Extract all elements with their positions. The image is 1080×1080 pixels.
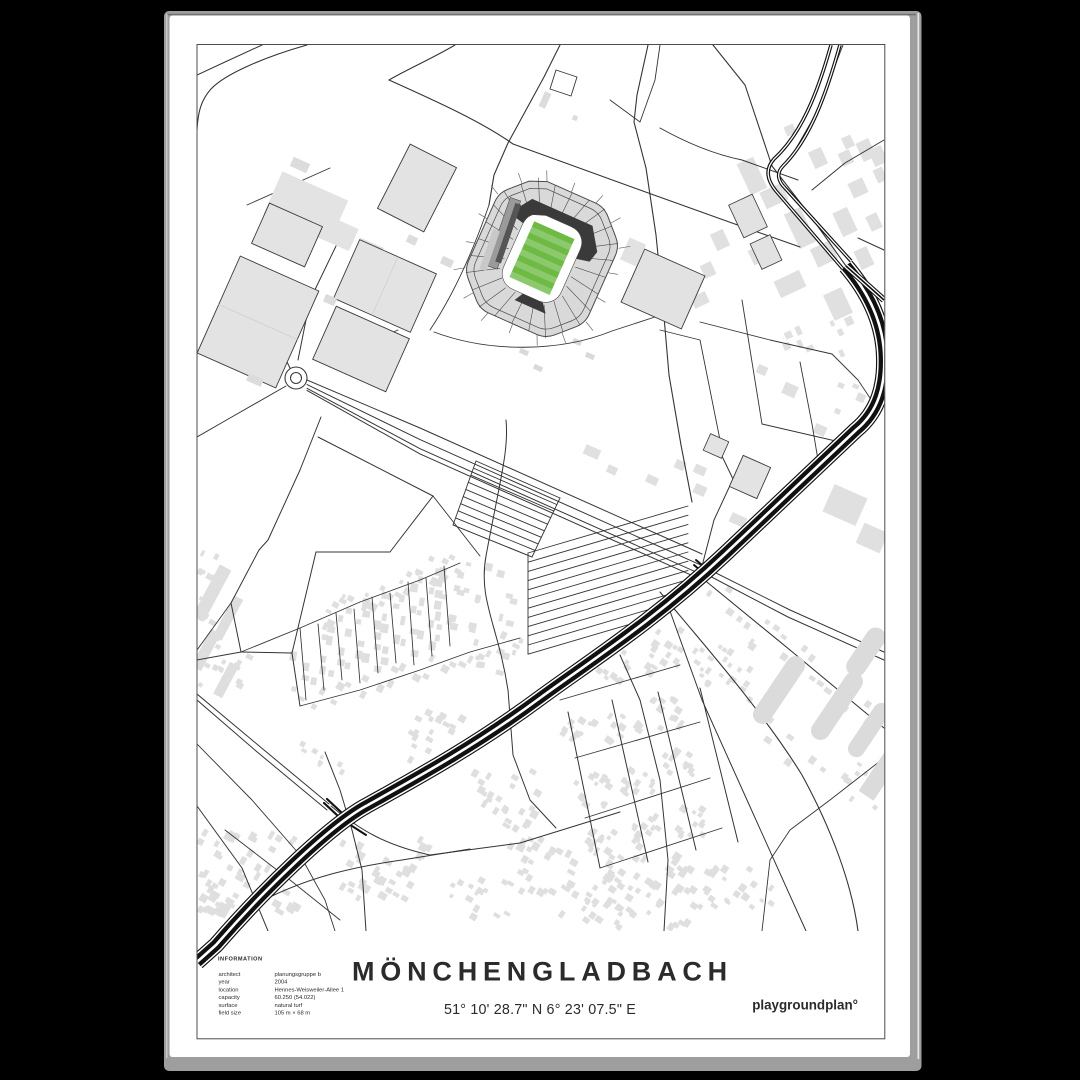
svg-text:capacity: capacity — [219, 995, 240, 1001]
svg-text:MÖNCHENGLADBACH: MÖNCHENGLADBACH — [352, 957, 733, 987]
svg-text:105 m × 68 m: 105 m × 68 m — [275, 1011, 311, 1017]
svg-text:year: year — [219, 980, 230, 986]
svg-text:2004: 2004 — [275, 980, 289, 986]
svg-text:location: location — [219, 987, 239, 993]
svg-text:natural turf: natural turf — [275, 1003, 303, 1009]
svg-text:Hennes-Weisweiler-Allee 1: Hennes-Weisweiler-Allee 1 — [275, 987, 344, 993]
svg-text:planungsgruppe b: planungsgruppe b — [275, 972, 321, 978]
svg-text:60.250 (54.022): 60.250 (54.022) — [275, 995, 316, 1001]
svg-text:surface: surface — [219, 1003, 238, 1009]
svg-text:INFORMATION: INFORMATION — [218, 957, 263, 963]
svg-text:playgroundplan°: playgroundplan° — [752, 998, 858, 1013]
svg-text:51° 10' 28.7" N 6° 23' 07.5": 51° 10' 28.7" N 6° 23' 07.5" E — [444, 1002, 636, 1018]
svg-text:architect: architect — [219, 972, 241, 978]
svg-text:field size: field size — [219, 1011, 242, 1017]
